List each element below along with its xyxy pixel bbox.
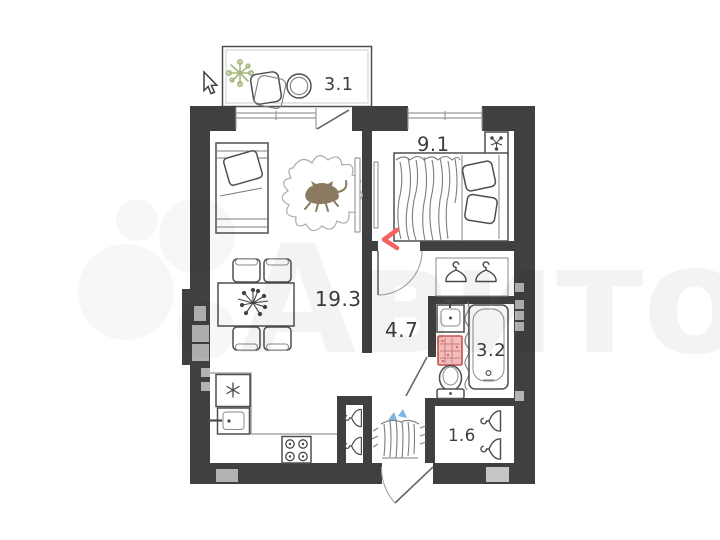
watermark-logo-circle [78, 244, 174, 340]
watermark: Авито [78, 198, 720, 388]
entrance-door-swing [381, 467, 395, 503]
balcony-table-icon [287, 74, 311, 98]
watermark-logo-circle [116, 199, 158, 241]
room-balcony: 3.1 [223, 47, 372, 110]
kitchen-sink-icon [208, 408, 250, 434]
watermark-logo-circle [159, 198, 235, 274]
stove-icon [282, 437, 311, 464]
umbrella-icon [388, 409, 407, 420]
clothes-hanger-icon [481, 411, 501, 431]
floorplan-drawing: 3.1 [0, 0, 720, 540]
clothes-hanger-icon [345, 437, 362, 454]
area-label-entry: 1.6 [448, 426, 476, 445]
pillow-icon [462, 160, 497, 192]
bedroom-window [408, 108, 482, 129]
clothes-hanger-icon [481, 439, 501, 459]
shoe-rack-sketch [372, 409, 426, 458]
floorplan-canvas: 3.1 [0, 0, 720, 540]
arrow-cursor-icon [204, 72, 217, 94]
room-entry: 1.6 [448, 411, 501, 459]
watermark-text: Авито [240, 214, 720, 388]
kitchen-closet [345, 409, 362, 454]
area-label-balcony: 3.1 [324, 75, 353, 95]
balcony-door [317, 110, 349, 129]
entrance-door [395, 467, 433, 503]
nightstand-icon [485, 132, 508, 155]
living-window [236, 108, 316, 129]
clothes-hanger-icon [345, 409, 362, 426]
watermark-logo-circle [177, 301, 235, 359]
